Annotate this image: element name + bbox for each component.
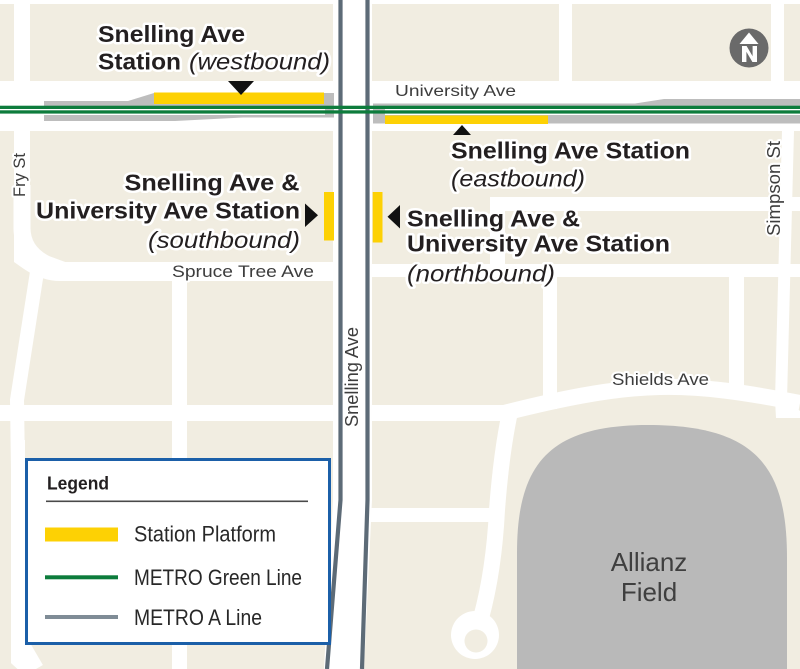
svg-text:Snelling Ave: Snelling Ave xyxy=(98,21,245,47)
svg-text:University Ave Station: University Ave Station xyxy=(407,231,670,257)
svg-text:METRO A Line: METRO A Line xyxy=(134,605,262,630)
svg-text:Simpson St: Simpson St xyxy=(764,141,784,236)
svg-text:Spruce Tree Ave: Spruce Tree Ave xyxy=(172,263,314,281)
svg-text:Station: Station xyxy=(98,49,181,75)
svg-text:Snelling Ave Station: Snelling Ave Station xyxy=(451,138,690,164)
svg-text:(eastbound): (eastbound) xyxy=(451,166,585,192)
svg-text:Snelling Ave &: Snelling Ave & xyxy=(407,206,580,232)
svg-text:(southbound): (southbound) xyxy=(148,227,300,253)
svg-text:Field: Field xyxy=(621,577,677,607)
svg-text:(westbound): (westbound) xyxy=(189,49,330,75)
svg-text:Fry St: Fry St xyxy=(10,153,29,197)
svg-text:Station Platform: Station Platform xyxy=(134,522,276,547)
svg-text:University Ave: University Ave xyxy=(395,83,516,100)
svg-text:Shields Ave: Shields Ave xyxy=(612,370,709,389)
svg-text:Snelling Ave: Snelling Ave xyxy=(342,327,362,427)
svg-text:(northbound): (northbound) xyxy=(407,261,555,287)
svg-text:Snelling Ave &: Snelling Ave & xyxy=(125,170,300,196)
svg-text:METRO Green Line: METRO Green Line xyxy=(134,565,302,590)
svg-text:Allianz: Allianz xyxy=(611,547,688,577)
svg-text:University Ave Station: University Ave Station xyxy=(36,197,300,223)
svg-text:Legend: Legend xyxy=(47,473,109,494)
